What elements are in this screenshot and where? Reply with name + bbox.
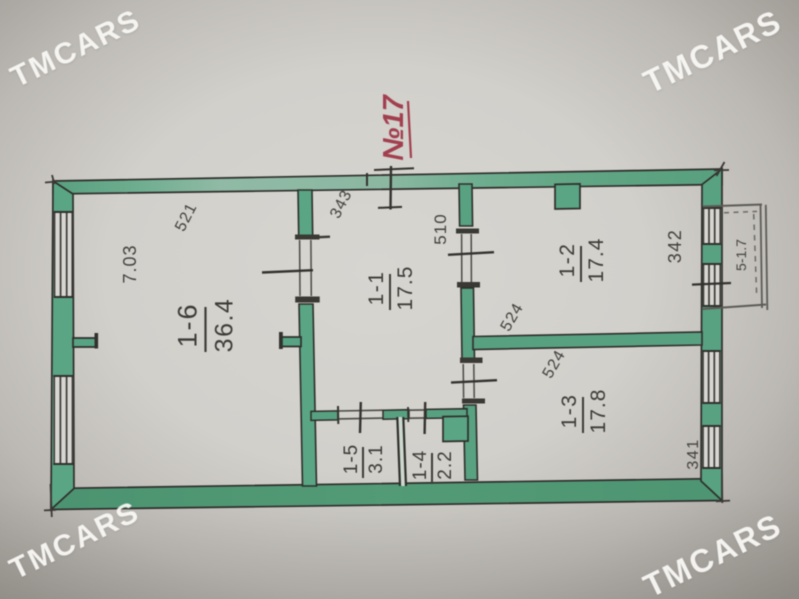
svg-text:36.4: 36.4 — [211, 298, 239, 353]
svg-text:521: 521 — [172, 200, 201, 234]
svg-text:1-2: 1-2 — [556, 243, 579, 278]
svg-text:1-5: 1-5 — [341, 444, 362, 474]
svg-text:№17: №17 — [378, 93, 410, 160]
svg-text:7.03: 7.03 — [120, 244, 140, 283]
svg-text:524: 524 — [498, 300, 528, 334]
svg-text:524: 524 — [540, 347, 570, 381]
svg-text:510: 510 — [431, 213, 450, 244]
svg-text:1-6: 1-6 — [173, 302, 203, 347]
svg-text:17.5: 17.5 — [394, 266, 417, 311]
svg-text:17.8: 17.8 — [587, 389, 610, 434]
svg-text:1-4: 1-4 — [410, 450, 431, 480]
svg-text:5-1.7: 5-1.7 — [733, 239, 749, 271]
svg-text:1-3: 1-3 — [558, 394, 581, 429]
svg-text:2.2: 2.2 — [435, 450, 456, 479]
svg-text:17.4: 17.4 — [585, 238, 608, 283]
svg-text:1-1: 1-1 — [365, 271, 388, 306]
svg-text:3.1: 3.1 — [366, 444, 387, 473]
svg-text:341: 341 — [685, 438, 702, 469]
svg-text:343: 343 — [327, 187, 356, 221]
svg-text:342: 342 — [665, 229, 685, 264]
